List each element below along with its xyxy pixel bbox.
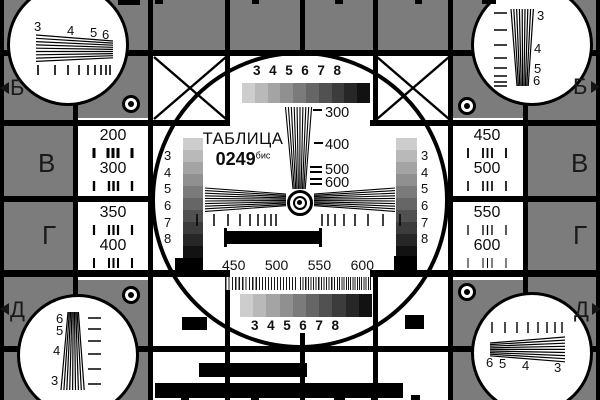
panel-value: 500 (452, 161, 522, 177)
panel-value: 600 (452, 238, 522, 254)
line-pattern (464, 224, 510, 236)
grid-line (0, 196, 153, 202)
line-pattern (464, 147, 510, 159)
edge-arrow-right (591, 81, 600, 93)
edge-letter: В (571, 150, 588, 176)
grid-line (300, 0, 305, 52)
grid-line (447, 196, 600, 202)
corner-scale-digit: 5 (90, 26, 97, 39)
corner-scale-digit: 3 (554, 361, 561, 374)
panel-value: 300 (78, 161, 148, 177)
edge-letter: Г (42, 222, 56, 248)
edge-letter: Г (573, 222, 587, 248)
corner-scale-digit: 3 (51, 374, 58, 387)
corner-scale-digit: 6 (533, 74, 540, 87)
corner-scale-digit: 5 (499, 357, 506, 370)
panel-value: 450 (452, 128, 522, 144)
edge-letter: Д (574, 299, 589, 321)
corner-scale-digit: 4 (534, 42, 541, 55)
edge-letter: В (38, 150, 55, 176)
cropped-glyph-mark (335, 0, 343, 4)
reflection-marker (405, 315, 424, 329)
corner-scale-digit: 3 (34, 20, 41, 33)
corner-scale-digit: 4 (67, 24, 74, 37)
corner-scale-digit: 3 (537, 9, 544, 22)
line-pattern (90, 224, 136, 236)
edge-arrow-left (0, 82, 9, 94)
corner-scale-digit: 4 (522, 359, 529, 372)
panel-value: 200 (78, 128, 148, 144)
line-pattern (464, 257, 510, 269)
line-pattern (90, 147, 136, 159)
line-pattern (90, 180, 136, 192)
edge-arrow-left (0, 303, 9, 315)
panel-value: 400 (78, 238, 148, 254)
alignment-target (458, 283, 476, 301)
cropped-glyph-mark (482, 0, 496, 4)
pulse-bar-long (155, 383, 403, 398)
alignment-target (458, 97, 476, 115)
edge-letter: Б (573, 76, 587, 98)
alignment-target (122, 95, 140, 113)
cropped-glyph-mark (118, 0, 140, 5)
tv-test-card: 3 4 5 6 7 8 300 400 500 600 ТАБЛИЦА 0249… (0, 0, 600, 400)
cropped-glyph-mark (334, 394, 345, 400)
corner-scale-digit: 6 (102, 28, 109, 41)
reflection-marker (182, 317, 207, 330)
line-pattern (90, 257, 136, 269)
cropped-glyph-mark (251, 396, 259, 400)
edge-letter: Д (10, 299, 25, 321)
pulse-bar-short (199, 363, 307, 377)
cropped-glyph-mark (371, 396, 377, 400)
cropped-glyph-mark (415, 0, 422, 4)
panel-value: 550 (452, 205, 522, 221)
corner-scale-digit: 6 (486, 356, 493, 369)
edge-letter: Б (10, 77, 24, 99)
panel-value: 350 (78, 205, 148, 221)
cropped-glyph-mark (252, 0, 259, 4)
cropped-glyph-mark (181, 395, 189, 400)
corner-scale-digit: 4 (53, 344, 60, 357)
main-circle-outline (151, 51, 449, 349)
alignment-target (122, 286, 140, 304)
edge-arrow-right (592, 303, 600, 315)
corner-scale-digit: 5 (56, 324, 63, 337)
cropped-glyph-mark (411, 395, 420, 400)
line-pattern (464, 180, 510, 192)
cropped-glyph-mark (155, 0, 163, 4)
